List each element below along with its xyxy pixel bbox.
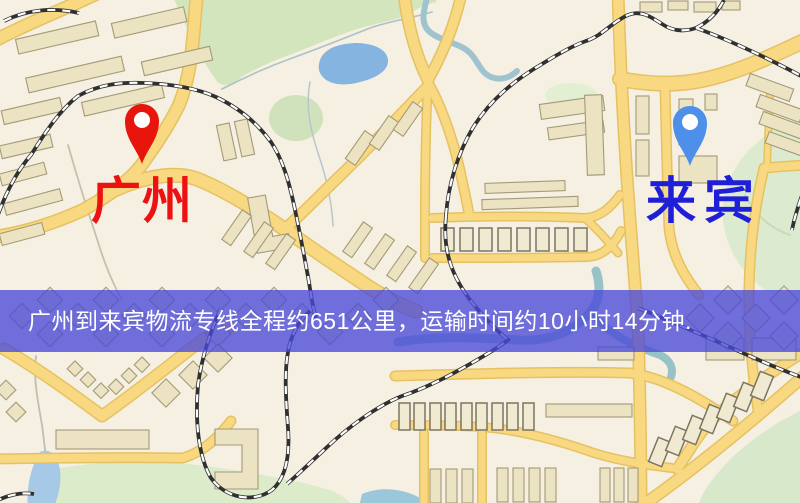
route-info-banner: 广州到来宾物流专线全程约651公里，运输时间约10小时14分钟. [0, 290, 800, 352]
route-info-text: 广州到来宾物流专线全程约651公里，运输时间约10小时14分钟. [0, 290, 800, 352]
map-pin-icon [125, 104, 159, 164]
map-canvas: 广州 来宾 广州到来宾物流专线全程约651公里，运输时间约10小时14分钟. [0, 0, 800, 503]
map-pin-icon [673, 106, 707, 166]
destination-city-label: 来宾 [646, 176, 762, 226]
origin-city-label: 广州 [91, 176, 193, 226]
origin-marker-pin[interactable] [122, 101, 162, 165]
map-background [0, 0, 800, 503]
destination-marker-pin[interactable] [670, 103, 710, 167]
